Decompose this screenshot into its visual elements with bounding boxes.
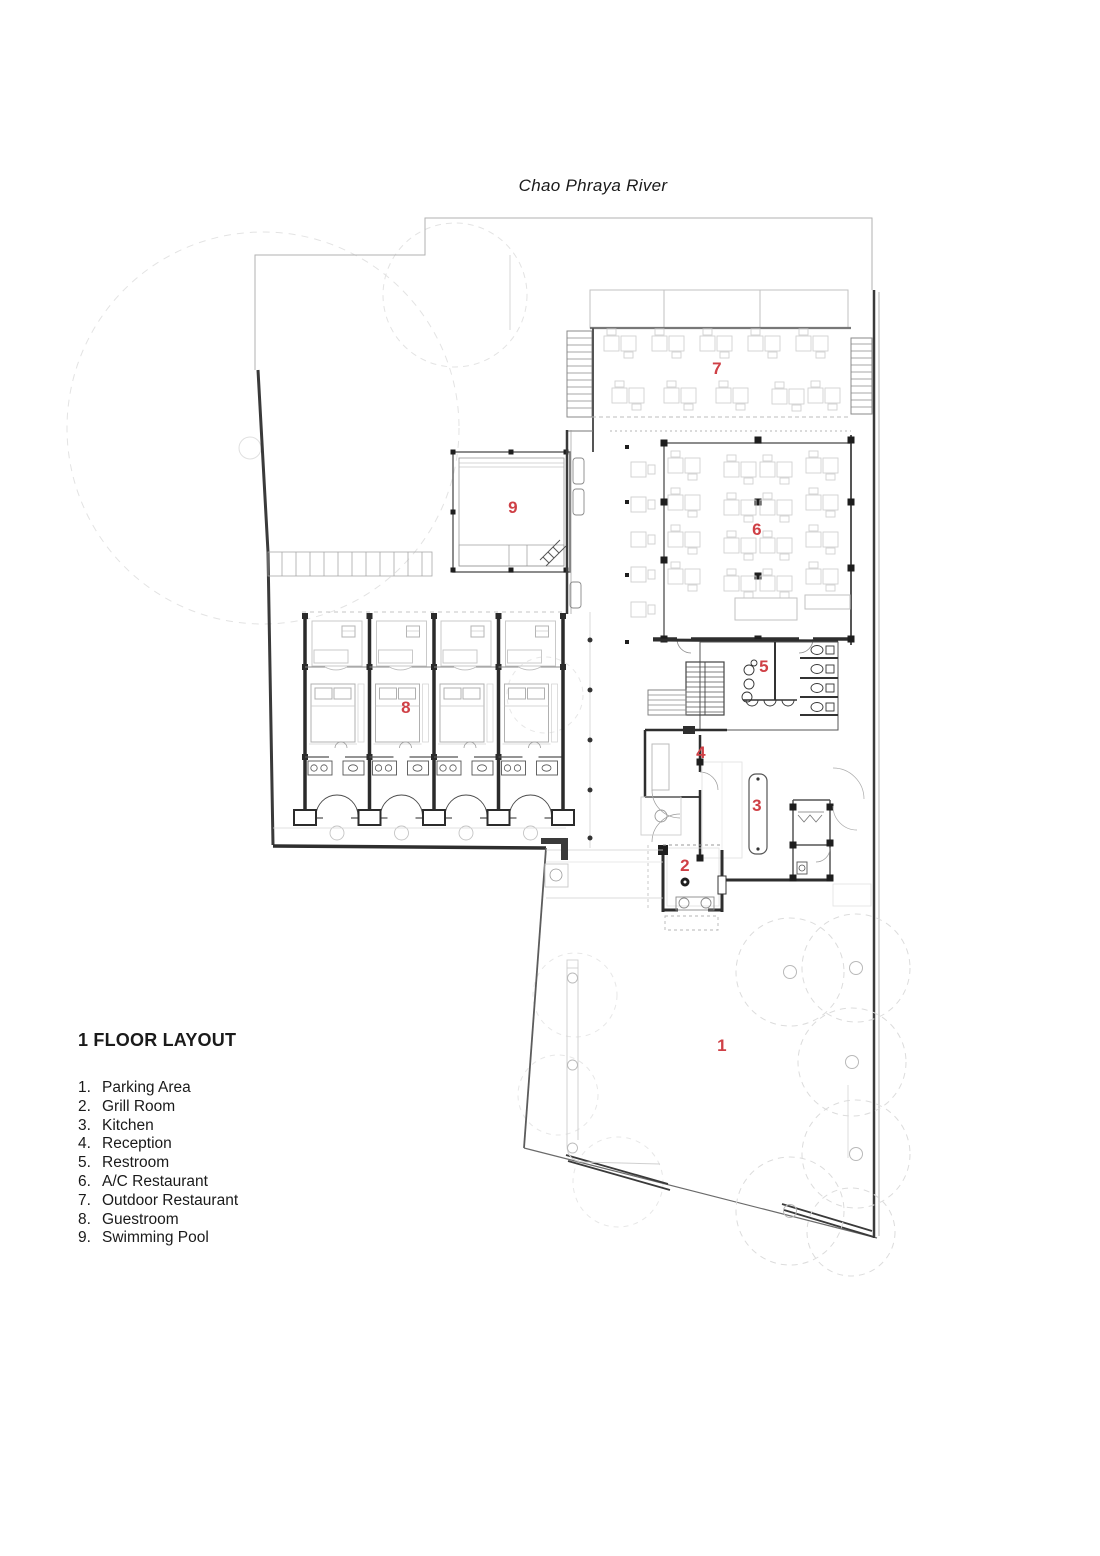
ac-restaurant-area	[610, 431, 855, 653]
legend-item-number: 9.	[78, 1229, 102, 1248]
guestroom-extras	[273, 612, 574, 828]
legend-item: 9.Swimming Pool	[78, 1229, 238, 1248]
plan-label-kitchen: 3	[752, 796, 762, 816]
legend-item: 5.Restroom	[78, 1154, 238, 1173]
legend-item-label: Restroom	[102, 1154, 169, 1173]
legend-item-label: Reception	[102, 1135, 172, 1154]
legend-item: 8.Guestroom	[78, 1211, 238, 1230]
plan-label-parking-area: 1	[717, 1036, 727, 1056]
guestroom-unit	[488, 613, 564, 840]
legend-item-label: Grill Room	[102, 1098, 175, 1117]
restroom-area	[653, 640, 838, 730]
plan-label-grill-room: 2	[680, 856, 690, 876]
guestroom-unit	[423, 613, 499, 840]
swimming-pool-area	[451, 430, 585, 614]
legend: 1 FLOOR LAYOUT 1.Parking Area2.Grill Roo…	[78, 1030, 238, 1248]
legend-item-number: 1.	[78, 1079, 102, 1098]
reception-area	[641, 726, 727, 842]
legend-item-label: Guestroom	[102, 1211, 179, 1230]
legend-item-number: 4.	[78, 1135, 102, 1154]
plan-label-outdoor-restaurant: 7	[712, 359, 722, 379]
legend-item-number: 5.	[78, 1154, 102, 1173]
legend-item-number: 7.	[78, 1192, 102, 1211]
guestroom-unit	[359, 613, 435, 840]
entry-walkway-north	[268, 552, 432, 576]
stairs	[648, 662, 724, 715]
legend-item-number: 6.	[78, 1173, 102, 1192]
legend-list: 1.Parking Area2.Grill Room3.Kitchen4.Rec…	[78, 1079, 238, 1248]
plan-label-a-c-restaurant: 6	[752, 520, 762, 540]
legend-item-label: Swimming Pool	[102, 1229, 209, 1248]
legend-item-label: Outdoor Restaurant	[102, 1192, 238, 1211]
plan-label-restroom: 5	[759, 657, 769, 677]
legend-item: 6.A/C Restaurant	[78, 1173, 238, 1192]
legend-item-label: Kitchen	[102, 1117, 154, 1136]
guestroom-units	[294, 613, 563, 840]
plan-label-swimming-pool: 9	[508, 498, 518, 518]
legend-item: 3.Kitchen	[78, 1117, 238, 1136]
legend-heading: 1 FLOOR LAYOUT	[78, 1030, 238, 1051]
legend-item-label: A/C Restaurant	[102, 1173, 208, 1192]
legend-item: 4.Reception	[78, 1135, 238, 1154]
parking-area	[567, 914, 910, 1276]
legend-item-number: 8.	[78, 1211, 102, 1230]
legend-item: 1.Parking Area	[78, 1079, 238, 1098]
legend-item-label: Parking Area	[102, 1079, 191, 1098]
plan-label-reception: 4	[696, 743, 706, 763]
legend-item: 2.Grill Room	[78, 1098, 238, 1117]
floorplan-page: Chao Phraya River	[0, 0, 1100, 1556]
legend-item-number: 3.	[78, 1117, 102, 1136]
legend-item-number: 2.	[78, 1098, 102, 1117]
plan-label-guestroom: 8	[401, 698, 411, 718]
legend-item: 7.Outdoor Restaurant	[78, 1192, 238, 1211]
guestroom-unit	[294, 613, 370, 840]
floorplan-drawing	[0, 0, 1100, 1556]
grill-room-area	[541, 838, 726, 930]
